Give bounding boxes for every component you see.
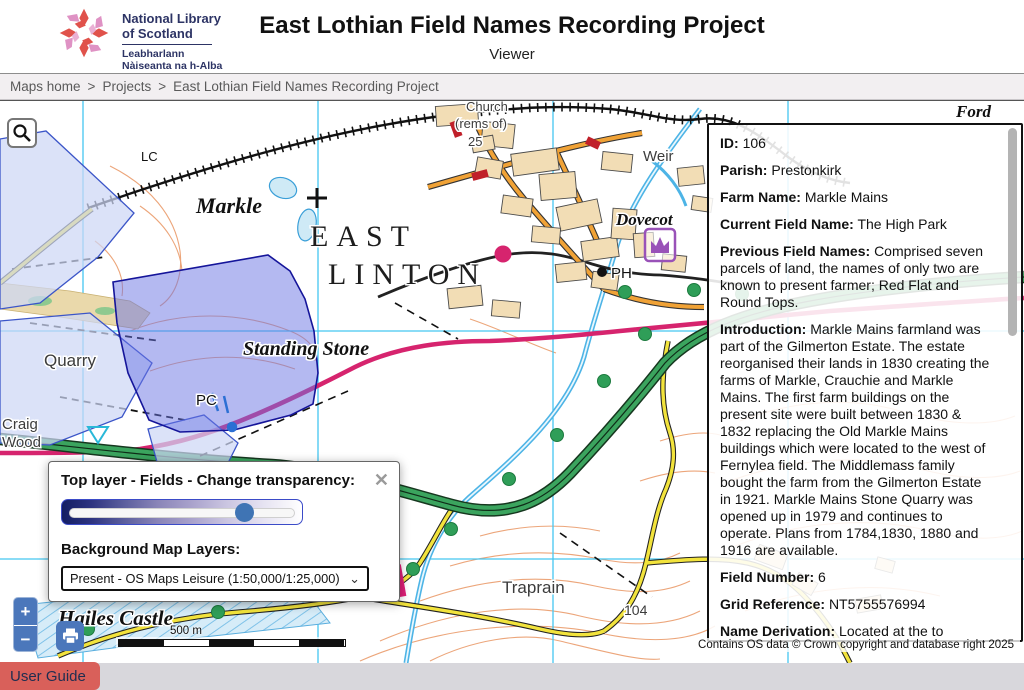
magnifier-icon	[12, 123, 32, 143]
scalebar-bar	[118, 639, 346, 647]
field-grid-reference: Grid Reference: NT5755576994	[720, 596, 995, 613]
user-guide-button[interactable]: User Guide	[0, 662, 100, 690]
map-label-craig: Craig	[2, 416, 38, 433]
map-label-dovecot: Dovecot	[615, 210, 674, 229]
chevron-down-icon: ⌄	[349, 571, 360, 587]
map-label-wood: Wood	[2, 434, 41, 451]
castle-icon	[645, 229, 675, 261]
printer-icon	[62, 628, 79, 644]
breadcrumb-separator: >	[158, 79, 166, 94]
background-layer-value: Present - OS Maps Leisure (1:50,000/1:25…	[70, 571, 340, 586]
layer-dialog-title: Top layer - Fields - Change transparency…	[61, 472, 387, 489]
field-introduction: Introduction: Markle Mains farmland was …	[720, 321, 995, 559]
field-id: ID: 106	[720, 135, 995, 152]
zoom-control: + −	[13, 597, 38, 652]
page-title: East Lothian Field Names Recording Proje…	[0, 12, 1024, 40]
field-previous-names: Previous Field Names: Comprised seven pa…	[720, 243, 995, 311]
field-farm-name: Farm Name: Markle Mains	[720, 189, 995, 206]
roundabout-dot	[495, 246, 512, 263]
zoom-in-button[interactable]: +	[14, 598, 37, 625]
scalebar: 500 m	[118, 625, 346, 647]
map-label-markle: Markle	[195, 193, 262, 218]
map-label-quarry: Quarry	[44, 351, 96, 370]
map-label-church: Church	[466, 101, 508, 114]
map-label-25: 25	[468, 134, 482, 149]
field-parish: Parish: Prestonkirk	[720, 162, 995, 179]
map-label-traprain: Traprain	[502, 578, 565, 597]
app-header: National Library of Scotland Leabharlann…	[0, 0, 1024, 73]
breadcrumb-link-maps-home[interactable]: Maps home	[10, 79, 81, 94]
map-label-standing-stone: Standing Stone	[243, 338, 369, 360]
scalebar-label: 500 m	[170, 625, 346, 637]
search-zoom-button[interactable]	[7, 118, 37, 148]
map-label-104: 104	[624, 602, 648, 618]
breadcrumb-separator: >	[88, 79, 96, 94]
field-info-panel[interactable]: ID: 106 Parish: Prestonkirk Farm Name: M…	[707, 123, 1023, 642]
footer-bar: User Guide	[0, 663, 1024, 690]
close-icon[interactable]: ✕	[374, 470, 389, 491]
print-button[interactable]	[56, 621, 84, 651]
background-layers-label: Background Map Layers:	[61, 541, 387, 558]
panel-scrollbar[interactable]	[1008, 128, 1017, 336]
logo-rule	[122, 44, 212, 45]
map-label-weir: Weir	[643, 148, 674, 165]
zoom-out-button[interactable]: −	[14, 626, 37, 652]
map-label-east: EAST	[310, 220, 417, 253]
field-number: Field Number: 6	[720, 569, 995, 586]
map-label-lc: LC	[141, 149, 158, 164]
map-label-pc: PC	[196, 392, 217, 409]
map-viewport[interactable]: 76 LC Ford Church (rems of) 25 Markle EA…	[0, 100, 1024, 663]
breadcrumb-link-projects[interactable]: Projects	[102, 79, 151, 94]
breadcrumb-current: East Lothian Field Names Recording Proje…	[173, 79, 439, 94]
map-label-ph: PH	[611, 265, 632, 282]
ph-dot	[597, 267, 607, 277]
map-label-rems: (rems of)	[455, 116, 507, 131]
background-layer-select[interactable]: Present - OS Maps Leisure (1:50,000/1:25…	[61, 566, 369, 591]
map-attribution: Contains OS data © Crown copyright and d…	[692, 638, 1020, 652]
transparency-slider[interactable]	[61, 499, 303, 525]
slider-track[interactable]	[69, 508, 295, 518]
map-label-ford: Ford	[955, 102, 991, 121]
page-subtitle: Viewer	[0, 46, 1024, 63]
layer-dialog: Top layer - Fields - Change transparency…	[48, 461, 400, 602]
slider-thumb[interactable]	[235, 503, 254, 522]
breadcrumb: Maps home > Projects > East Lothian Fiel…	[0, 73, 1024, 100]
field-current-name: Current Field Name: The High Park	[720, 216, 995, 233]
map-label-linton: LINTON	[328, 258, 487, 291]
